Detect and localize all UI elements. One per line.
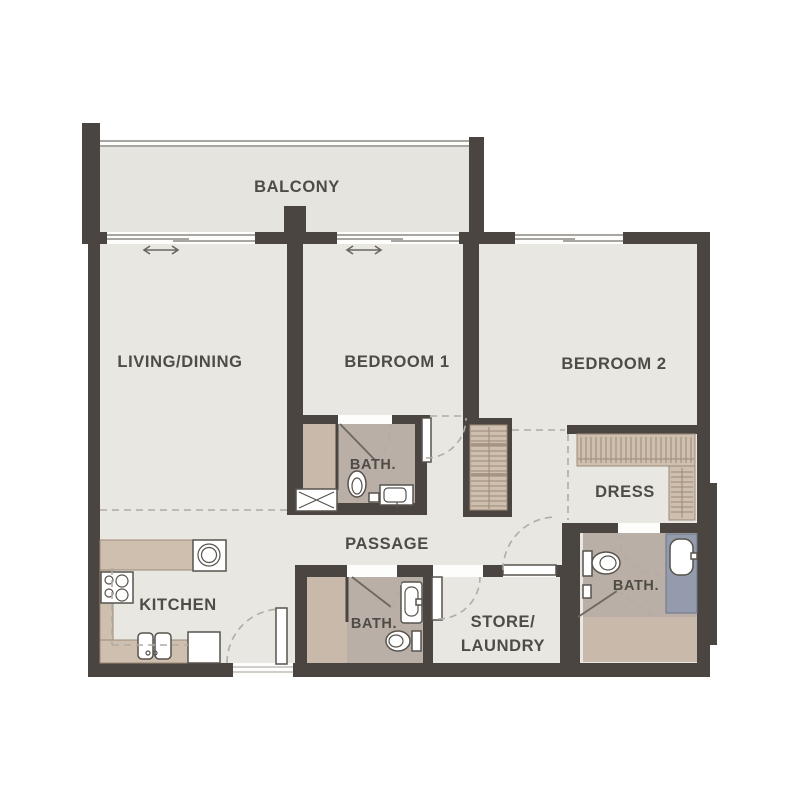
- label-living-dining: LIVING/DINING: [117, 353, 242, 371]
- kitchen-counter-top: [100, 540, 193, 570]
- wall-right-step: [710, 483, 717, 645]
- basin-bowl: [670, 539, 693, 575]
- toilet-tank: [583, 551, 592, 576]
- label-kitchen: KITCHEN: [139, 596, 217, 614]
- bath3-shower-floor: [583, 617, 697, 662]
- cooktop: [101, 572, 133, 603]
- wall-bath3-top: [572, 523, 618, 533]
- wardrobe-dress-right: [669, 466, 695, 520]
- wall-dress-top: [567, 425, 700, 434]
- wall-passage-north: [483, 565, 503, 577]
- wall-living-bedroom1: [287, 244, 303, 515]
- shower-tray: [296, 489, 337, 511]
- sink-bowl: [155, 633, 171, 659]
- wall-bath3-top: [660, 523, 700, 533]
- basin-bath1: [380, 485, 413, 508]
- kitchen-sink: [138, 633, 171, 659]
- washing-machine: [193, 540, 226, 571]
- toilet-tank: [412, 631, 421, 651]
- wardrobe-bedroom1: [470, 425, 507, 510]
- basin-bath2: [401, 582, 422, 623]
- toilet-flush: [369, 493, 379, 502]
- label-bedroom-1: BEDROOM 1: [344, 353, 449, 371]
- entry-door-opening: [233, 663, 293, 677]
- wall-bedroom1-bedroom2: [463, 244, 479, 418]
- toilet-bowl: [348, 471, 366, 497]
- door-leaf: [422, 418, 431, 462]
- door-leaf: [503, 565, 556, 575]
- wall-top: [255, 232, 337, 244]
- door-leaf: [276, 608, 287, 664]
- label-bedroom-2: BEDROOM 2: [561, 355, 666, 373]
- wardrobe-dress-top: [577, 434, 695, 466]
- label-balcony: BALCONY: [254, 178, 340, 196]
- bath3-door-opening: [618, 523, 660, 533]
- vanity-bath3: [666, 534, 697, 613]
- wall-bottom: [293, 663, 710, 677]
- floors: [100, 147, 697, 663]
- wall-top: [623, 232, 710, 244]
- label-bath-3: BATH.: [613, 578, 659, 594]
- wall-entry-bath2: [295, 565, 307, 677]
- wall-bath3-left: [562, 523, 580, 663]
- floor-plan-canvas: BALCONY LIVING/DINING BEDROOM 1 BEDROOM …: [0, 0, 800, 800]
- wall-bottom: [88, 663, 233, 677]
- bath1-door-opening: [338, 415, 392, 424]
- wall-bath1-top: [287, 415, 338, 424]
- wall-passage-south: [307, 565, 347, 577]
- wall-balcony-divider-stub: [284, 206, 306, 232]
- dishwasher: [188, 632, 220, 663]
- label-bath-1: BATH.: [350, 457, 396, 473]
- label-bath-2: BATH.: [351, 616, 397, 632]
- sink-bowl: [138, 633, 153, 659]
- toilet-paper-holder: [583, 585, 591, 598]
- wall-right: [697, 232, 710, 663]
- label-store-laundry-line2: LAUNDRY: [461, 637, 545, 655]
- door-leaf: [432, 577, 442, 620]
- label-dress: DRESS: [595, 483, 655, 501]
- bath2-door-opening: [347, 565, 397, 577]
- wall-balcony-left: [82, 123, 100, 232]
- bath2-shower-floor: [307, 577, 347, 663]
- wall-top: [459, 232, 515, 244]
- store-door-opening: [433, 565, 483, 577]
- basin-tap: [691, 553, 697, 559]
- toilet-bath2: [386, 631, 421, 651]
- label-passage: PASSAGE: [345, 535, 429, 553]
- floor-plan: BALCONY LIVING/DINING BEDROOM 1 BEDROOM …: [0, 0, 800, 800]
- label-store-laundry-line1: STORE/: [471, 613, 536, 631]
- basin-tap: [416, 599, 422, 605]
- wall-balcony-right: [469, 137, 484, 232]
- wall-left: [88, 232, 100, 677]
